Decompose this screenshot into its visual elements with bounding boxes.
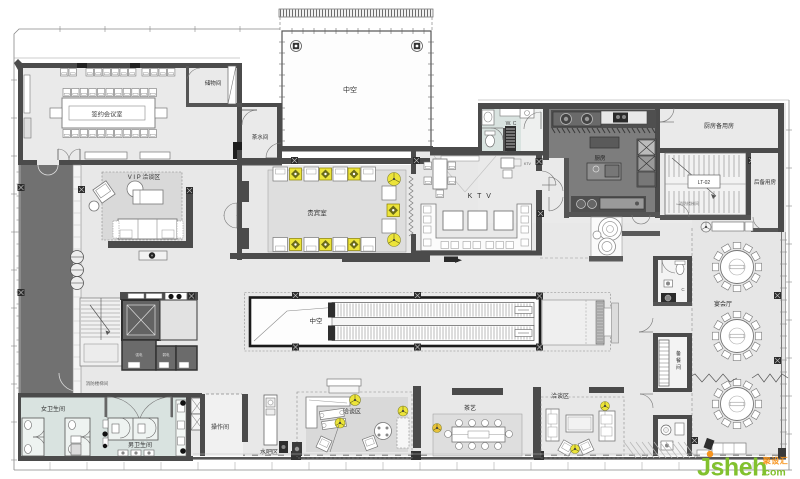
svg-text:中空: 中空 bbox=[343, 85, 357, 94]
svg-text:储物间: 储物间 bbox=[205, 79, 222, 87]
svg-text:水吧区: 水吧区 bbox=[260, 448, 278, 456]
svg-text:餐: 餐 bbox=[676, 357, 681, 364]
svg-text:中空: 中空 bbox=[310, 316, 324, 325]
svg-text:KTV: KTV bbox=[524, 162, 531, 166]
svg-text:K T V: K T V bbox=[468, 193, 493, 200]
svg-text:洽谈区: 洽谈区 bbox=[551, 392, 569, 400]
svg-text:V I P 洽谈区: V I P 洽谈区 bbox=[128, 173, 161, 181]
svg-text:宴会厅: 宴会厅 bbox=[714, 300, 732, 308]
svg-text:消防楼梯间: 消防楼梯间 bbox=[86, 380, 109, 387]
svg-text:强电: 强电 bbox=[136, 352, 143, 357]
svg-text:签约会议室: 签约会议室 bbox=[92, 111, 123, 119]
svg-text:茶艺: 茶艺 bbox=[464, 404, 476, 412]
svg-text:洽谈区: 洽谈区 bbox=[343, 408, 361, 416]
svg-text:间: 间 bbox=[676, 364, 681, 371]
svg-text:厨房备用房: 厨房备用房 bbox=[704, 122, 734, 130]
svg-text:男卫生间: 男卫生间 bbox=[128, 441, 152, 449]
svg-text:LT-02: LT-02 bbox=[698, 180, 711, 186]
svg-text:茶水间: 茶水间 bbox=[252, 133, 269, 141]
svg-text:.com: .com bbox=[761, 467, 786, 479]
svg-text:Jsheh: Jsheh bbox=[697, 454, 767, 479]
svg-text:女卫生间: 女卫生间 bbox=[41, 405, 65, 413]
svg-text:后备用房: 后备用房 bbox=[754, 178, 777, 186]
svg-text:备: 备 bbox=[676, 350, 681, 357]
svg-text:消防楼梯间: 消防楼梯间 bbox=[679, 200, 699, 206]
svg-text:贵宾室: 贵宾室 bbox=[307, 208, 327, 217]
svg-text:厨房: 厨房 bbox=[594, 154, 606, 162]
svg-text:弱电: 弱电 bbox=[163, 352, 170, 357]
svg-text:操作间: 操作间 bbox=[211, 423, 229, 431]
svg-text:聚设汇: 聚设汇 bbox=[762, 456, 789, 466]
